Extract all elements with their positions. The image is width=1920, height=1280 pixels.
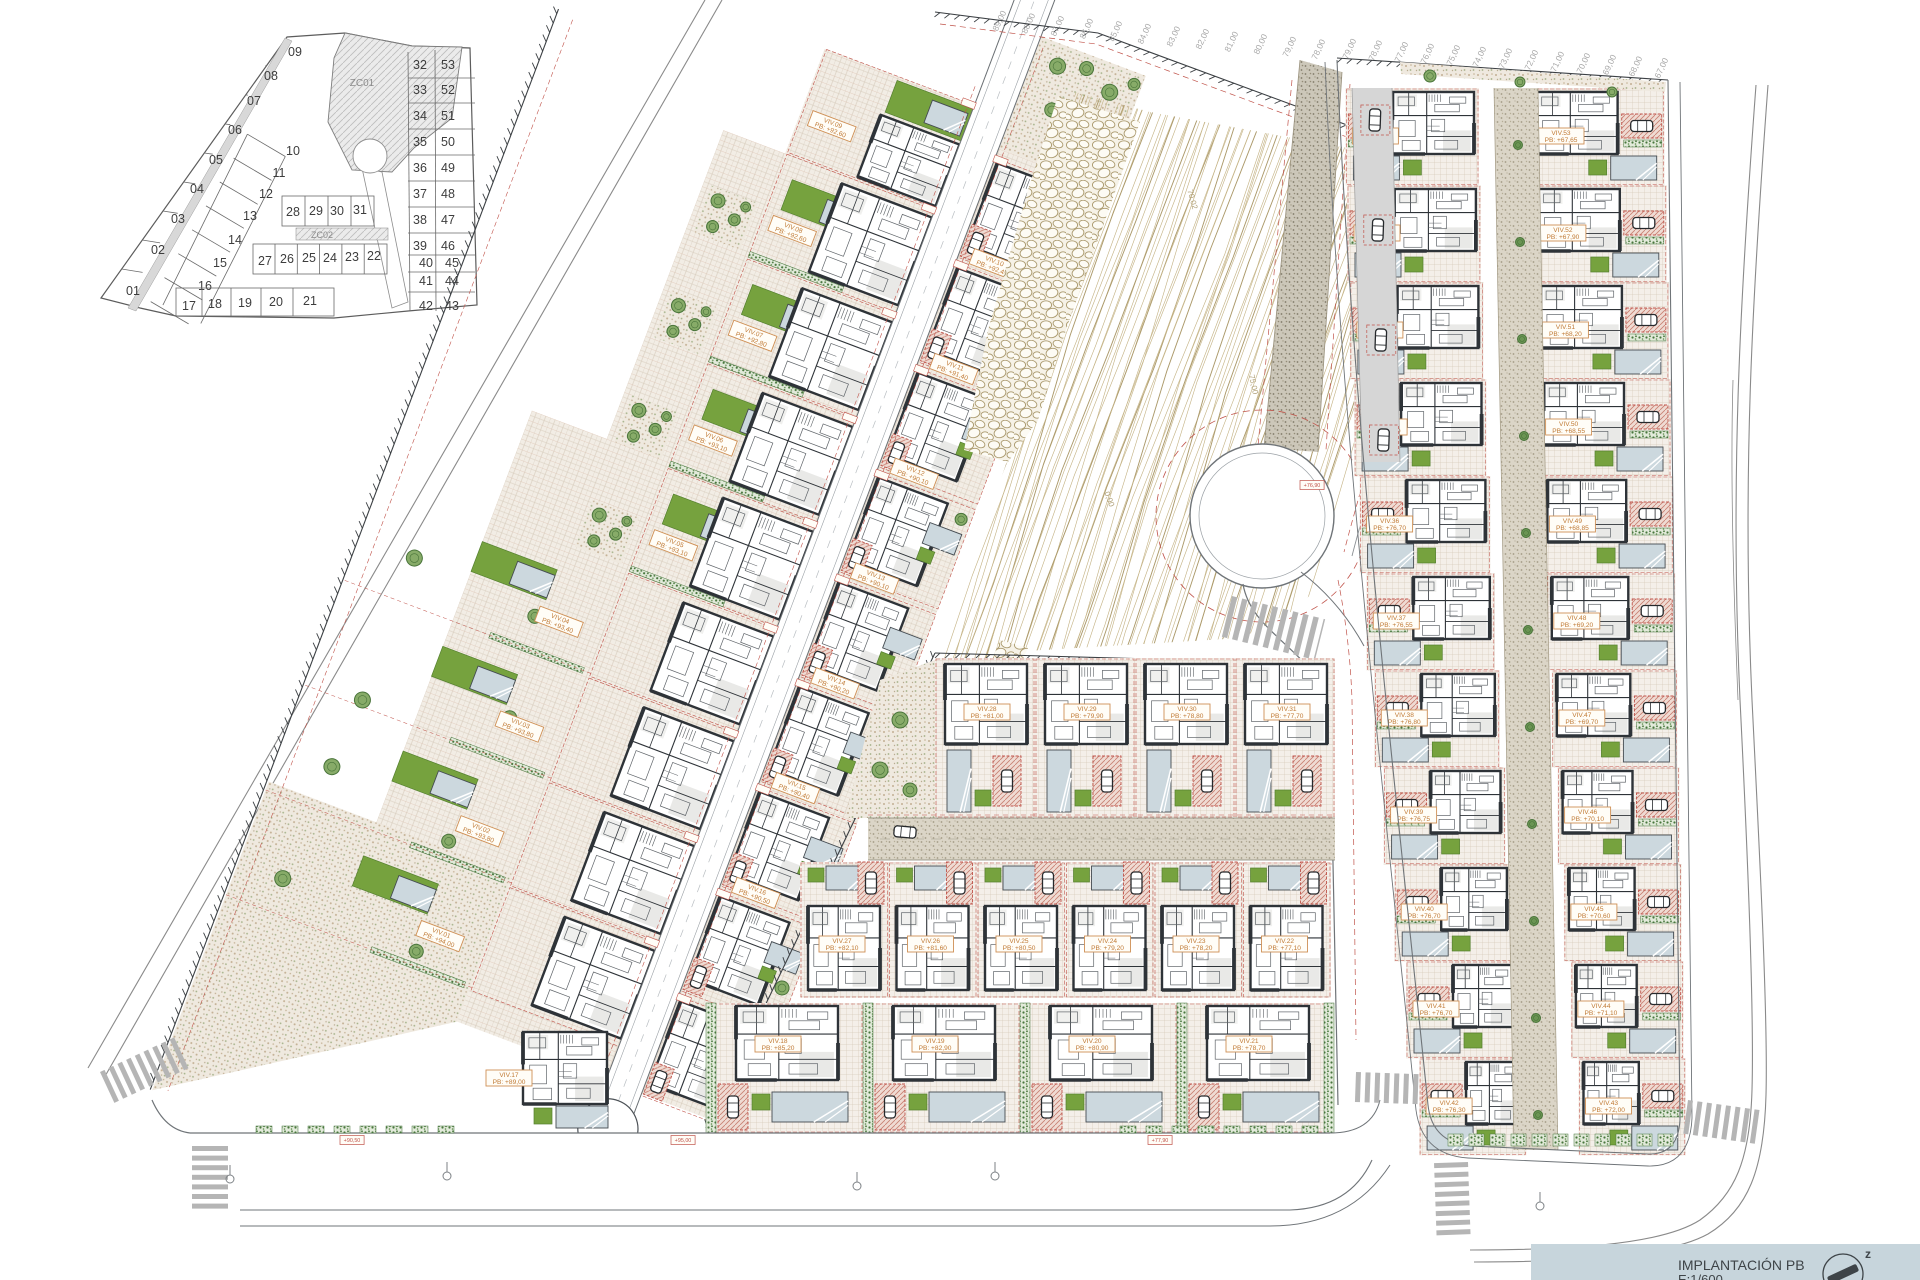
svg-text:03: 03	[171, 212, 185, 226]
svg-text:38: 38	[413, 213, 427, 227]
svg-text:PB: +68,55: PB: +68,55	[1552, 428, 1585, 435]
svg-text:VIV.51: VIV.51	[1556, 324, 1576, 331]
svg-text:53: 53	[441, 58, 455, 72]
svg-text:VIV.26: VIV.26	[921, 938, 941, 945]
svg-text:VIV.25: VIV.25	[1009, 938, 1029, 945]
svg-text:VIV.18: VIV.18	[768, 1038, 788, 1045]
svg-text:E:1/600: E:1/600	[1678, 1272, 1723, 1280]
svg-text:PB: +89,00: PB: +89,00	[493, 1079, 526, 1086]
svg-text:31: 31	[353, 203, 367, 217]
svg-text:VIV.38: VIV.38	[1395, 712, 1415, 719]
svg-text:PB: +79,90: PB: +79,90	[1071, 713, 1104, 720]
svg-text:VIV.50: VIV.50	[1559, 421, 1579, 428]
svg-text:12: 12	[259, 187, 273, 201]
svg-text:16: 16	[198, 279, 212, 293]
svg-text:VIV.47: VIV.47	[1572, 712, 1592, 719]
svg-text:27: 27	[258, 254, 272, 268]
svg-text:VIV.48: VIV.48	[1567, 615, 1587, 622]
svg-text:VIV.30: VIV.30	[1177, 706, 1197, 713]
svg-text:VIV.39: VIV.39	[1404, 809, 1424, 816]
svg-text:PB: +76,70: PB: +76,70	[1420, 1010, 1453, 1017]
svg-text:VIV.19: VIV.19	[925, 1038, 945, 1045]
svg-text:PB: +76,70: PB: +76,70	[1408, 913, 1441, 920]
svg-text:09: 09	[288, 45, 302, 59]
svg-text:PB: +76,30: PB: +76,30	[1433, 1107, 1466, 1114]
svg-text:PB: +85,20: PB: +85,20	[762, 1045, 795, 1052]
svg-text:36: 36	[413, 161, 427, 175]
svg-text:04: 04	[190, 182, 204, 196]
svg-text:z: z	[1865, 1247, 1871, 1261]
svg-text:PB: +79,20: PB: +79,20	[1091, 945, 1124, 952]
svg-text:24: 24	[323, 251, 337, 265]
svg-text:PB: +78,80: PB: +78,80	[1171, 713, 1204, 720]
svg-text:VIV.40: VIV.40	[1415, 906, 1435, 913]
svg-text:+90,50: +90,50	[344, 1138, 361, 1144]
svg-text:PB: +78,20: PB: +78,20	[1180, 945, 1213, 952]
svg-text:28: 28	[286, 205, 300, 219]
svg-text:39: 39	[413, 239, 427, 253]
svg-text:VIV.24: VIV.24	[1098, 938, 1118, 945]
svg-text:PB: +77,70: PB: +77,70	[1271, 713, 1304, 720]
svg-text:33: 33	[413, 83, 427, 97]
svg-text:VIV.43: VIV.43	[1599, 1100, 1619, 1107]
svg-text:47: 47	[441, 213, 455, 227]
svg-text:PB: +77,10: PB: +77,10	[1268, 945, 1301, 952]
svg-text:06: 06	[228, 123, 242, 137]
svg-text:25: 25	[302, 251, 316, 265]
svg-text:32: 32	[413, 58, 427, 72]
svg-text:29: 29	[309, 204, 323, 218]
svg-text:22: 22	[367, 249, 381, 263]
svg-text:PB: +72,00: PB: +72,00	[1592, 1107, 1625, 1114]
svg-text:VIV.53: VIV.53	[1551, 130, 1571, 137]
svg-text:21: 21	[303, 294, 317, 308]
svg-text:50: 50	[441, 135, 455, 149]
svg-text:01: 01	[126, 284, 140, 298]
svg-text:PB: +78,70: PB: +78,70	[1233, 1045, 1266, 1052]
svg-text:VIV.49: VIV.49	[1563, 518, 1583, 525]
svg-text:VIV.46: VIV.46	[1578, 809, 1598, 816]
svg-text:PB: +69,20: PB: +69,20	[1560, 622, 1593, 629]
svg-text:40: 40	[419, 256, 433, 270]
svg-text:VIV.28: VIV.28	[977, 706, 997, 713]
svg-text:02: 02	[151, 243, 165, 257]
svg-text:VIV.22: VIV.22	[1275, 938, 1295, 945]
svg-text:VIV.42: VIV.42	[1439, 1100, 1459, 1107]
svg-text:26: 26	[280, 252, 294, 266]
svg-text:08: 08	[264, 69, 278, 83]
svg-text:52: 52	[441, 83, 455, 97]
svg-text:VIV.21: VIV.21	[1239, 1038, 1259, 1045]
svg-text:VIV.44: VIV.44	[1591, 1003, 1611, 1010]
svg-text:45: 45	[445, 256, 459, 270]
svg-text:PB: +82,10: PB: +82,10	[826, 945, 859, 952]
svg-text:20: 20	[269, 295, 283, 309]
svg-text:42: 42	[419, 299, 433, 313]
svg-text:18: 18	[208, 297, 222, 311]
svg-text:PB: +76,80: PB: +76,80	[1388, 719, 1421, 726]
svg-text:VIV.45: VIV.45	[1584, 906, 1604, 913]
svg-text:15: 15	[213, 256, 227, 270]
svg-text:37: 37	[413, 187, 427, 201]
svg-text:51: 51	[441, 109, 455, 123]
svg-text:PB: +76,55: PB: +76,55	[1380, 622, 1413, 629]
svg-text:IMPLANTACIÓN PB: IMPLANTACIÓN PB	[1678, 1257, 1805, 1273]
svg-text:PB: +68,85: PB: +68,85	[1556, 525, 1589, 532]
svg-text:PB: +70,60: PB: +70,60	[1577, 913, 1610, 920]
svg-text:PB: +76,75: PB: +76,75	[1397, 816, 1430, 823]
svg-text:41: 41	[419, 274, 433, 288]
svg-text:PB: +81,00: PB: +81,00	[971, 713, 1004, 720]
svg-text:PB: +76,70: PB: +76,70	[1373, 525, 1406, 532]
svg-text:43: 43	[445, 299, 459, 313]
svg-text:VIV.36: VIV.36	[1380, 518, 1400, 525]
svg-text:13: 13	[243, 209, 257, 223]
svg-text:PB: +69,70: PB: +69,70	[1565, 719, 1598, 726]
svg-text:PB: +80,50: PB: +80,50	[1003, 945, 1036, 952]
svg-text:PB: +67,90: PB: +67,90	[1546, 234, 1579, 241]
svg-text:VIV.29: VIV.29	[1077, 706, 1097, 713]
svg-text:VIV.23: VIV.23	[1186, 938, 1206, 945]
svg-text:PB: +81,60: PB: +81,60	[914, 945, 947, 952]
svg-text:30: 30	[330, 204, 344, 218]
svg-text:+95,00: +95,00	[675, 1138, 692, 1144]
svg-text:PB: +70,10: PB: +70,10	[1571, 816, 1604, 823]
svg-text:34: 34	[413, 109, 427, 123]
svg-text:05: 05	[209, 153, 223, 167]
svg-text:VIV.17: VIV.17	[499, 1072, 519, 1079]
svg-text:11: 11	[273, 166, 286, 180]
svg-text:VIV.52: VIV.52	[1553, 227, 1573, 234]
svg-text:46: 46	[441, 239, 455, 253]
svg-text:23: 23	[345, 250, 359, 264]
svg-text:+76,90: +76,90	[1304, 483, 1321, 489]
svg-text:+77,90: +77,90	[1152, 1138, 1169, 1144]
svg-text:PB: +80,90: PB: +80,90	[1076, 1045, 1109, 1052]
svg-text:PB: +71,10: PB: +71,10	[1584, 1010, 1617, 1017]
svg-text:ZC02: ZC02	[311, 230, 333, 240]
svg-text:VIV.20: VIV.20	[1082, 1038, 1102, 1045]
svg-text:VIV.37: VIV.37	[1387, 615, 1407, 622]
svg-text:VIV.31: VIV.31	[1277, 706, 1297, 713]
svg-text:14: 14	[228, 233, 242, 247]
svg-text:17: 17	[182, 299, 196, 313]
svg-text:VIV.41: VIV.41	[1426, 1003, 1446, 1010]
svg-text:19: 19	[238, 296, 252, 310]
svg-text:35: 35	[413, 135, 427, 149]
svg-text:ZC01: ZC01	[350, 78, 375, 89]
svg-text:PB: +67,65: PB: +67,65	[1545, 137, 1578, 144]
svg-text:10: 10	[286, 144, 300, 158]
svg-text:49: 49	[441, 161, 455, 175]
svg-text:VIV.27: VIV.27	[832, 938, 852, 945]
svg-text:48: 48	[441, 187, 455, 201]
svg-text:PB: +68,20: PB: +68,20	[1549, 331, 1582, 338]
svg-text:PB: +82,90: PB: +82,90	[919, 1045, 952, 1052]
svg-text:07: 07	[247, 94, 261, 108]
